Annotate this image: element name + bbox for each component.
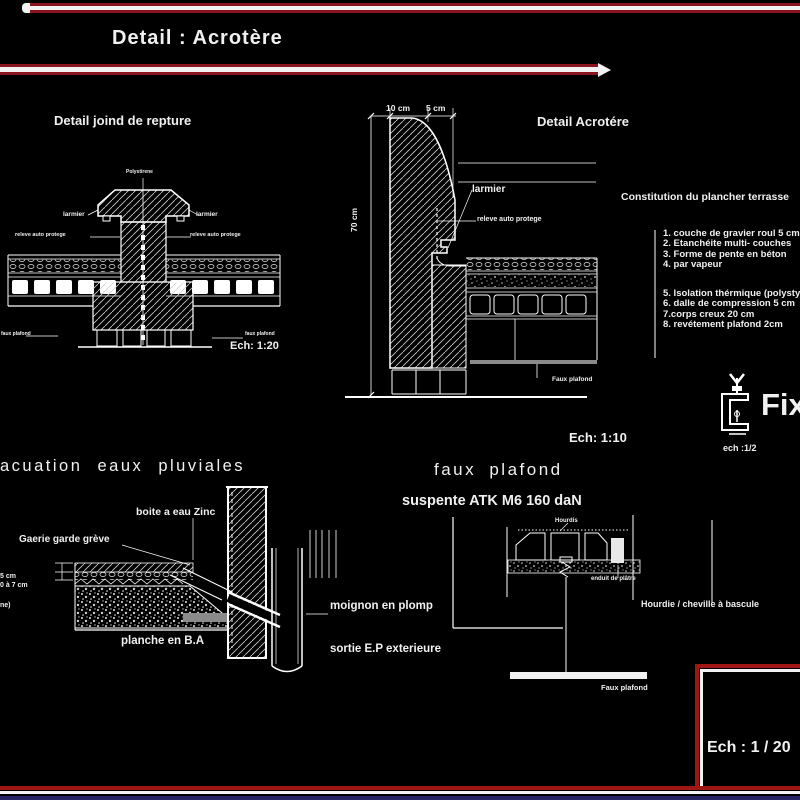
suspente-slab-section [508,530,640,573]
acrotere-dim-5cm: 5 cm [426,103,445,113]
acrotere-dim-70cm: 70 cm [349,208,359,232]
faux-plafond-gray-line [470,360,597,364]
moignon-label: moignon en plomp [330,600,433,612]
frame-top-white [701,669,800,672]
joint-releve-right-label: releve auto protege [190,232,241,238]
fix-scale-label: ech :1/2 [723,443,757,453]
page-title: Detail : Acrotère [112,27,283,50]
acrotere-drawing [340,100,660,405]
acrotere-roof-layers [466,258,597,378]
acrotere-base-columns [345,370,587,397]
joint-larmier-right-label: larmier [196,211,218,218]
joint-bottom-right-label: faux plafond [245,331,275,337]
hourdis-small-label: Hourdis [555,518,578,524]
evacuation-wall [226,487,268,658]
frame-left-red [695,664,699,790]
sortie-ep-label: sortie E.P exterieure [330,643,441,655]
garde-greve-label: Gaerie garde grève [19,534,110,545]
evacuation-title: acuation eaux pluviales [0,457,245,476]
joint-detail-title: Detail joind de repture [54,113,191,128]
suspente-hanger [560,557,572,672]
enduit-pillar [611,538,624,563]
cad-canvas: Detail : Acrotère Detail joind de reptur… [0,0,800,800]
frame-left-white [700,669,703,790]
layer-item-4: 4. par vapeur [663,260,800,270]
evac-dim-1: 5 cm [0,573,16,580]
fix-label: Fix [761,387,800,423]
acrotere-parapet [390,118,466,368]
bottom-white-line [0,791,800,794]
evacuation-pipe [272,530,336,672]
boite-eau-label: boite a eau Zinc [136,506,215,518]
acrotere-larmier-label: larmier [472,184,505,195]
layer-item-8: 8. revétement plafond 2cm [663,320,800,330]
evac-dim-3: ne) [0,602,11,609]
acrotere-scale-label: Ech: 1:10 [569,430,627,445]
frame-top-red [695,664,800,668]
planche-ba-label: planche en B.A [121,635,204,647]
top-bar-1 [30,3,800,13]
hourdie-cheville-label: Hourdie / cheville à bascule [641,599,759,609]
suspente-drawing [440,505,730,690]
joint-polystirene-label: Polystirene [126,169,153,175]
top-bar-2 [0,64,598,75]
joint-bottom-left-label: faux plafond [1,331,31,337]
joint-rupture-drawing [0,130,290,365]
bottom-navy-line [0,796,800,800]
acrotere-faux-plafond-label: Faux plafond [552,376,592,383]
constitution-title: Constitution du plancher terrasse [621,191,789,203]
joint-scale-label: Ech: 1:20 [230,340,279,352]
joint-releve-left-label: releve auto protege [15,232,66,238]
constitution-layers-1: 1. couche de gravier roul 5 cm 2. Etanch… [663,229,800,270]
acrotere-dim-10cm: 10 cm [386,103,410,113]
faux-plafond-title: faux plafond [434,460,563,480]
title-block-scale: Ech : 1 / 20 [707,739,791,757]
faux-plafond-small-label: Faux plafond [601,683,648,692]
bottom-red-line [0,786,800,790]
top-bar-2-arrow [598,63,611,77]
fix-clamp-icon [710,372,765,440]
enduit-platre-label: enduit de plâtre [591,576,636,582]
acrotere-releve-label: releve auto protege [477,216,542,223]
constitution-layers-2: 5. Isolation thérmique (polystyrène) 6. … [663,289,800,330]
joint-larmier-left-label: larmier [63,211,85,218]
evac-dim-2: 0 à 7 cm [0,582,28,589]
